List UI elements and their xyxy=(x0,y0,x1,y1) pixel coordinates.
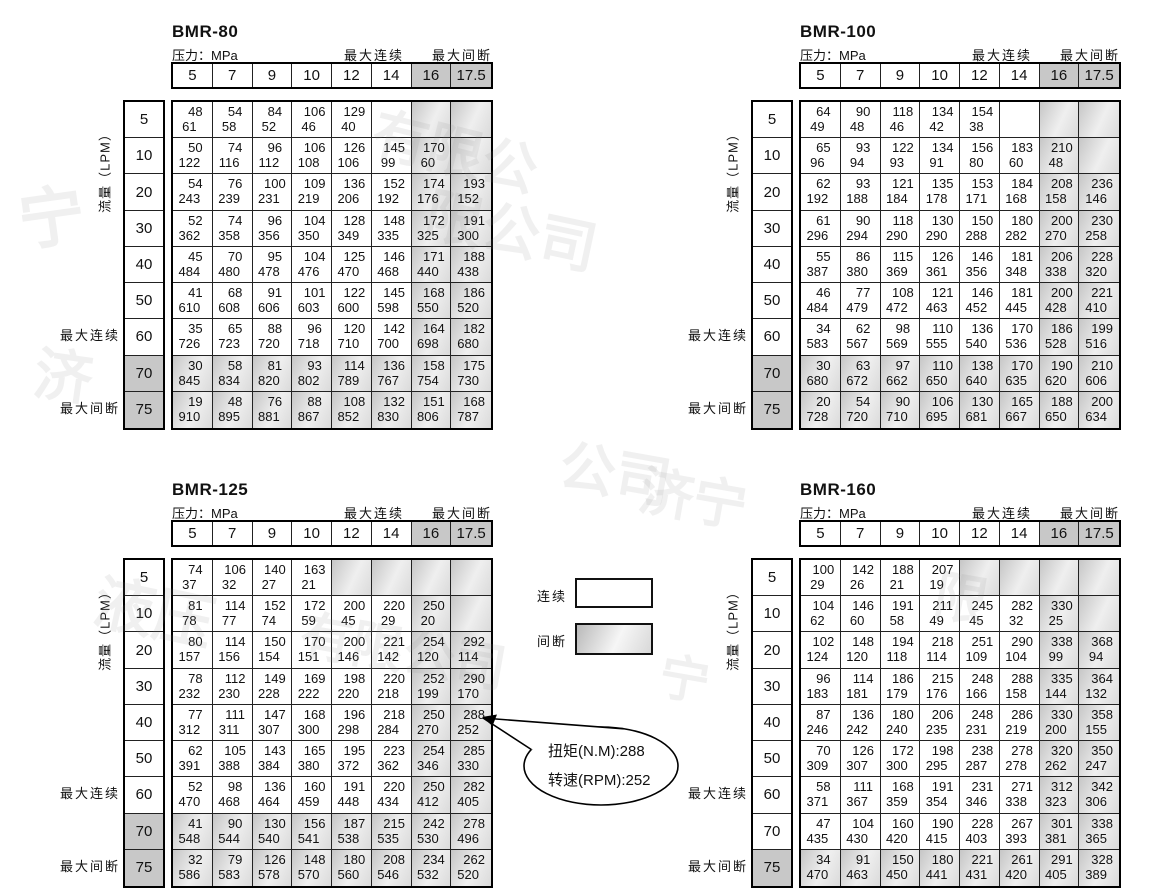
data-cell: 181348 xyxy=(1000,247,1040,283)
torque-value: 126 xyxy=(335,140,372,155)
speed-value: 32 xyxy=(1000,613,1036,628)
torque-value: 175 xyxy=(454,358,491,373)
speed-value: 157 xyxy=(173,649,209,664)
speed-value: 440 xyxy=(412,264,448,279)
data-cell: 8452 xyxy=(253,102,293,138)
torque-value: 65 xyxy=(216,321,253,336)
torque-value: 210 xyxy=(1082,358,1119,373)
data-cell: 271338 xyxy=(1000,777,1040,813)
speed-value: 61 xyxy=(173,119,209,134)
torque-value: 254 xyxy=(415,743,452,758)
speed-value: 176 xyxy=(920,686,956,701)
torque-value: 250 xyxy=(415,779,452,794)
torque-value: 77 xyxy=(176,707,213,722)
torque-value: 146 xyxy=(375,249,412,264)
data-cell: 147307 xyxy=(253,705,293,741)
data-cell: 54243 xyxy=(173,174,213,210)
data-cell: 151806 xyxy=(412,392,452,428)
speed-value: 288 xyxy=(960,228,996,243)
torque-value: 136 xyxy=(335,176,372,191)
data-cell: 172300 xyxy=(881,741,921,777)
speed-value: 350 xyxy=(292,228,328,243)
torque-value: 358 xyxy=(1082,707,1119,722)
pressure-header-cell: 10 xyxy=(920,522,960,545)
torque-value: 54 xyxy=(844,394,881,409)
speed-value: 300 xyxy=(451,228,488,243)
speed-value: 242 xyxy=(841,722,877,737)
torque-value: 200 xyxy=(1043,285,1080,300)
speed-value: 480 xyxy=(213,264,249,279)
speed-value: 155 xyxy=(1079,722,1116,737)
speed-value: 569 xyxy=(881,336,917,351)
data-cell: 146468 xyxy=(372,247,412,283)
torque-value: 220 xyxy=(375,779,412,794)
torque-value: 146 xyxy=(963,285,1000,300)
pressure-header-cell: 12 xyxy=(960,64,1000,87)
speed-value: 52 xyxy=(253,119,289,134)
data-cell: 118290 xyxy=(881,211,921,247)
flow-header-cell: 5 xyxy=(125,560,163,596)
data-cell: 10646 xyxy=(292,102,332,138)
bmr-80-table-section: BMR-80压力：MPa最大连续最大间断5791012141617.551020… xyxy=(20,22,506,434)
speed-value: 369 xyxy=(881,264,917,279)
speed-value: 431 xyxy=(960,867,996,882)
data-cell: 171440 xyxy=(412,247,452,283)
callout-torque-text: 扭矩(N.M):288 xyxy=(548,740,645,761)
speed-value: 472 xyxy=(881,300,917,315)
data-cell: 68608 xyxy=(213,283,253,319)
data-cell: 152192 xyxy=(372,174,412,210)
data-cell: 79583 xyxy=(213,850,253,886)
torque-value: 96 xyxy=(256,213,293,228)
data-cell: 150154 xyxy=(253,632,293,668)
speed-value: 59 xyxy=(292,613,328,628)
torque-value: 231 xyxy=(963,779,1000,794)
torque-value: 114 xyxy=(216,634,253,649)
pressure-header-cell: 5 xyxy=(801,64,841,87)
speed-value: 338 xyxy=(1000,794,1036,809)
speed-value: 74 xyxy=(253,613,289,628)
data-cell: 290104 xyxy=(1000,632,1040,668)
torque-value: 50 xyxy=(176,140,213,155)
data-cell: 182680 xyxy=(451,319,491,355)
speed-value: 681 xyxy=(960,409,996,424)
torque-value: 278 xyxy=(454,816,491,831)
speed-value: 372 xyxy=(332,758,368,773)
speed-value: 206 xyxy=(332,191,368,206)
data-cell: 251109 xyxy=(960,632,1000,668)
pressure-header-cell: 5 xyxy=(173,64,213,87)
torque-value: 19 xyxy=(176,394,213,409)
torque-value: 170 xyxy=(295,634,332,649)
data-cell: 104350 xyxy=(292,211,332,247)
data-cell: 364132 xyxy=(1079,669,1119,705)
speed-value: 367 xyxy=(841,794,877,809)
torque-value: 188 xyxy=(454,249,491,264)
data-cell: 14226 xyxy=(841,560,881,596)
bmr-160-table-section: BMR-160压力：MPa最大连续最大间断5791012141617.55102… xyxy=(648,480,1134,892)
torque-value: 186 xyxy=(454,285,491,300)
max-continuous-row-label: 最大连续 xyxy=(40,783,120,802)
data-cell: 101603 xyxy=(292,283,332,319)
speed-value: 365 xyxy=(1079,831,1116,846)
torque-value: 208 xyxy=(375,852,412,867)
speed-value: 496 xyxy=(451,831,488,846)
speed-value: 710 xyxy=(881,409,917,424)
speed-value: 38 xyxy=(960,119,996,134)
data-cell: 142700 xyxy=(372,319,412,355)
torque-value: 191 xyxy=(923,779,960,794)
torque-value: 193 xyxy=(454,176,491,191)
legend-intermittent-label: 间断 xyxy=(505,631,567,650)
speed-value: 530 xyxy=(412,831,448,846)
speed-value: 114 xyxy=(451,649,488,664)
table-title: BMR-100 xyxy=(800,22,876,42)
data-cell: 160459 xyxy=(292,777,332,813)
flow-header-cell: 30 xyxy=(753,669,791,705)
speed-value: 29 xyxy=(801,577,837,592)
data-cell: 143384 xyxy=(253,741,293,777)
speed-value: 845 xyxy=(173,373,209,388)
torque-value: 312 xyxy=(1043,779,1080,794)
speed-value: 359 xyxy=(881,794,917,809)
speed-value: 270 xyxy=(412,722,448,737)
speed-value: 450 xyxy=(881,867,917,882)
speed-value: 124 xyxy=(801,649,837,664)
data-cell: 190415 xyxy=(920,814,960,850)
data-cell: 230258 xyxy=(1079,211,1119,247)
flow-header-cell: 60 xyxy=(125,319,163,355)
torque-value: 114 xyxy=(844,671,881,686)
torque-value: 221 xyxy=(963,852,1000,867)
data-cell: 252199 xyxy=(412,669,452,705)
data-cell: 286219 xyxy=(1000,705,1040,741)
speed-value: 48 xyxy=(841,119,877,134)
torque-value: 156 xyxy=(963,140,1000,155)
data-cell: 14599 xyxy=(372,138,412,174)
data-cell: 62391 xyxy=(173,741,213,777)
torque-value: 135 xyxy=(923,176,960,191)
data-cell: 221410 xyxy=(1079,283,1119,319)
torque-value: 30 xyxy=(804,358,841,373)
torque-value: 190 xyxy=(923,816,960,831)
speed-value: 420 xyxy=(1000,867,1036,882)
torque-value: 147 xyxy=(256,707,293,722)
torque-value: 160 xyxy=(884,816,921,831)
data-cell: 181445 xyxy=(1000,283,1040,319)
torque-value: 93 xyxy=(295,358,332,373)
torque-value: 122 xyxy=(884,140,921,155)
data-cell: 220218 xyxy=(372,669,412,705)
data-cell: 50122 xyxy=(173,138,213,174)
data-cell: 4861 xyxy=(173,102,213,138)
speed-value: 168 xyxy=(1000,191,1036,206)
torque-value: 87 xyxy=(804,707,841,722)
data-cell: 14027 xyxy=(253,560,293,596)
speed-value: 672 xyxy=(841,373,877,388)
data-cell: 210606 xyxy=(1079,356,1119,392)
data-cell: 180282 xyxy=(1000,211,1040,247)
torque-value: 338 xyxy=(1043,634,1080,649)
data-cell: 19910 xyxy=(173,392,213,428)
torque-value: 47 xyxy=(804,816,841,831)
data-cell: 76881 xyxy=(253,392,293,428)
data-cell: 114181 xyxy=(841,669,881,705)
speed-value: 192 xyxy=(801,191,837,206)
speed-value: 635 xyxy=(1000,373,1036,388)
data-cell: 148335 xyxy=(372,211,412,247)
torque-value: 211 xyxy=(923,598,960,613)
speed-value: 356 xyxy=(253,228,289,243)
data-cell xyxy=(451,102,491,138)
torque-value: 151 xyxy=(415,394,452,409)
data-cell: 174176 xyxy=(412,174,452,210)
data-cell: 184168 xyxy=(1000,174,1040,210)
data-cell: 236146 xyxy=(1079,174,1119,210)
torque-value: 79 xyxy=(216,852,253,867)
data-cell: 47435 xyxy=(801,814,841,850)
torque-value: 74 xyxy=(216,140,253,155)
speed-value: 232 xyxy=(173,686,209,701)
flow-header-cell: 40 xyxy=(125,705,163,741)
data-grid: 4861545884521064612940501227411696112106… xyxy=(171,100,493,430)
max-intermittent-row-label: 最大间断 xyxy=(40,398,120,417)
speed-value: 520 xyxy=(451,300,488,315)
pressure-header-cell: 10 xyxy=(292,522,332,545)
data-cell: 288158 xyxy=(1000,669,1040,705)
speed-value: 158 xyxy=(1040,191,1076,206)
data-cell: 292114 xyxy=(451,632,491,668)
data-cell: 70309 xyxy=(801,741,841,777)
data-cell: 238287 xyxy=(960,741,1000,777)
torque-value: 169 xyxy=(295,671,332,686)
speed-value: 152 xyxy=(451,191,488,206)
flow-header-column: 51020304050607075 xyxy=(123,558,165,888)
torque-value: 91 xyxy=(256,285,293,300)
speed-value: 415 xyxy=(920,831,956,846)
torque-value: 34 xyxy=(804,852,841,867)
speed-value: 650 xyxy=(920,373,956,388)
torque-value: 168 xyxy=(295,707,332,722)
pressure-header-row: 5791012141617.5 xyxy=(799,62,1121,89)
data-cell: 267393 xyxy=(1000,814,1040,850)
data-cell: 126307 xyxy=(841,741,881,777)
flow-header-cell: 10 xyxy=(753,138,791,174)
speed-value: 560 xyxy=(332,867,368,882)
torque-value: 111 xyxy=(844,779,881,794)
speed-value: 540 xyxy=(253,831,289,846)
data-cell: 130290 xyxy=(920,211,960,247)
data-cell: 20728 xyxy=(801,392,841,428)
data-cell: 168300 xyxy=(292,705,332,741)
data-cell: 45484 xyxy=(173,247,213,283)
torque-value: 68 xyxy=(216,285,253,300)
data-cell: 160420 xyxy=(881,814,921,850)
flow-header-cell: 50 xyxy=(125,741,163,777)
data-cell: 46484 xyxy=(801,283,841,319)
torque-value: 181 xyxy=(1003,249,1040,264)
data-cell: 193152 xyxy=(451,174,491,210)
speed-value: 606 xyxy=(1079,373,1116,388)
speed-value: 528 xyxy=(1040,336,1076,351)
speed-value: 290 xyxy=(881,228,917,243)
data-cell: 12293 xyxy=(881,138,921,174)
torque-value: 121 xyxy=(923,285,960,300)
speed-value: 156 xyxy=(213,649,249,664)
speed-value: 96 xyxy=(801,155,837,170)
data-cell: 156541 xyxy=(292,814,332,850)
speed-value: 246 xyxy=(801,722,837,737)
speed-value: 49 xyxy=(801,119,837,134)
pressure-header-cell: 16 xyxy=(412,64,452,87)
data-cell: 146356 xyxy=(960,247,1000,283)
data-cell: 114789 xyxy=(332,356,372,392)
torque-value: 330 xyxy=(1043,707,1080,722)
data-cell xyxy=(451,596,491,632)
data-cell: 30680 xyxy=(801,356,841,392)
speed-value: 420 xyxy=(881,831,917,846)
data-cell: 15438 xyxy=(960,102,1000,138)
speed-value: 544 xyxy=(213,831,249,846)
data-cell: 109219 xyxy=(292,174,332,210)
speed-value: 48 xyxy=(1040,155,1076,170)
data-cell: 10632 xyxy=(213,560,253,596)
torque-value: 170 xyxy=(1003,358,1040,373)
legend-continuous-swatch xyxy=(575,578,653,608)
data-cell: 106695 xyxy=(920,392,960,428)
speed-value: 199 xyxy=(412,686,448,701)
speed-value: 231 xyxy=(960,722,996,737)
speed-value: 228 xyxy=(253,686,289,701)
flow-header-cell: 70 xyxy=(753,814,791,850)
data-cell: 200270 xyxy=(1040,211,1080,247)
torque-value: 180 xyxy=(335,852,372,867)
speed-value: 867 xyxy=(292,409,328,424)
speed-value: 459 xyxy=(292,794,328,809)
data-cell: 97662 xyxy=(881,356,921,392)
max-intermittent-row-label: 最大间断 xyxy=(668,856,748,875)
data-cell: 111311 xyxy=(213,705,253,741)
torque-value: 136 xyxy=(963,321,1000,336)
torque-value: 163 xyxy=(295,562,332,577)
data-cell: 136464 xyxy=(253,777,293,813)
speed-value: 348 xyxy=(1000,264,1036,279)
data-cell: 9394 xyxy=(841,138,881,174)
speed-value: 550 xyxy=(412,300,448,315)
torque-value: 95 xyxy=(256,249,293,264)
flow-header-cell: 50 xyxy=(125,283,163,319)
data-cell: 122600 xyxy=(332,283,372,319)
speed-value: 58 xyxy=(213,119,249,134)
torque-value: 32 xyxy=(176,852,213,867)
data-cell: 175730 xyxy=(451,356,491,392)
torque-value: 342 xyxy=(1082,779,1119,794)
speed-value: 278 xyxy=(1000,758,1036,773)
pressure-header-cell: 9 xyxy=(253,64,293,87)
speed-value: 470 xyxy=(332,264,368,279)
torque-value: 129 xyxy=(335,104,372,119)
torque-value: 156 xyxy=(295,816,332,831)
speed-value: 834 xyxy=(213,373,249,388)
flow-header-cell: 40 xyxy=(753,247,791,283)
torque-value: 150 xyxy=(256,634,293,649)
torque-value: 90 xyxy=(844,104,881,119)
torque-value: 328 xyxy=(1082,852,1119,867)
data-cell: 145598 xyxy=(372,283,412,319)
flow-axis-label: 流量（LPM） xyxy=(723,118,739,223)
torque-value: 74 xyxy=(176,562,213,577)
data-cell: 278278 xyxy=(1000,741,1040,777)
torque-value: 142 xyxy=(375,321,412,336)
speed-value: 26 xyxy=(841,577,877,592)
data-cell: 168550 xyxy=(412,283,452,319)
speed-value: 403 xyxy=(960,831,996,846)
torque-value: 184 xyxy=(1003,176,1040,191)
data-cell: 61296 xyxy=(801,211,841,247)
data-cell: 112230 xyxy=(213,669,253,705)
torque-value: 80 xyxy=(176,634,213,649)
torque-value: 186 xyxy=(1043,321,1080,336)
speed-value: 116 xyxy=(213,155,249,170)
speed-value: 787 xyxy=(451,409,488,424)
data-cell: 80157 xyxy=(173,632,213,668)
torque-value: 126 xyxy=(844,743,881,758)
speed-value: 362 xyxy=(372,758,408,773)
speed-value: 381 xyxy=(1040,831,1076,846)
speed-value: 77 xyxy=(213,613,249,628)
torque-value: 30 xyxy=(176,358,213,373)
data-cell: 33899 xyxy=(1040,632,1080,668)
data-cell: 228403 xyxy=(960,814,1000,850)
torque-value: 218 xyxy=(375,707,412,722)
data-cell: 96356 xyxy=(253,211,293,247)
torque-value: 104 xyxy=(804,598,841,613)
torque-value: 180 xyxy=(923,852,960,867)
speed-value: 200 xyxy=(1040,722,1076,737)
data-cell: 63672 xyxy=(841,356,881,392)
speed-value: 520 xyxy=(451,867,488,882)
speed-value: 151 xyxy=(292,649,328,664)
torque-value: 208 xyxy=(1043,176,1080,191)
speed-value: 468 xyxy=(372,264,408,279)
speed-value: 295 xyxy=(920,758,956,773)
torque-value: 149 xyxy=(256,671,293,686)
data-cell: 21048 xyxy=(1040,138,1080,174)
speed-value: 540 xyxy=(960,336,996,351)
speed-value: 667 xyxy=(1000,409,1036,424)
data-cell: 250270 xyxy=(412,705,452,741)
speed-value: 231 xyxy=(253,191,289,206)
torque-value: 174 xyxy=(415,176,452,191)
data-cell xyxy=(372,560,412,596)
torque-value: 76 xyxy=(216,176,253,191)
torque-value: 130 xyxy=(923,213,960,228)
torque-value: 220 xyxy=(375,598,412,613)
data-cell: 105388 xyxy=(213,741,253,777)
speed-value: 192 xyxy=(372,191,408,206)
torque-value: 152 xyxy=(375,176,412,191)
speed-value: 306 xyxy=(1079,794,1116,809)
data-cell: 200428 xyxy=(1040,283,1080,319)
torque-value: 206 xyxy=(923,707,960,722)
data-cell: 170635 xyxy=(1000,356,1040,392)
data-cell: 87246 xyxy=(801,705,841,741)
speed-value: 60 xyxy=(1000,155,1036,170)
speed-value: 478 xyxy=(253,264,289,279)
torque-value: 186 xyxy=(884,671,921,686)
data-cell: 104476 xyxy=(292,247,332,283)
data-cell: 121463 xyxy=(920,283,960,319)
